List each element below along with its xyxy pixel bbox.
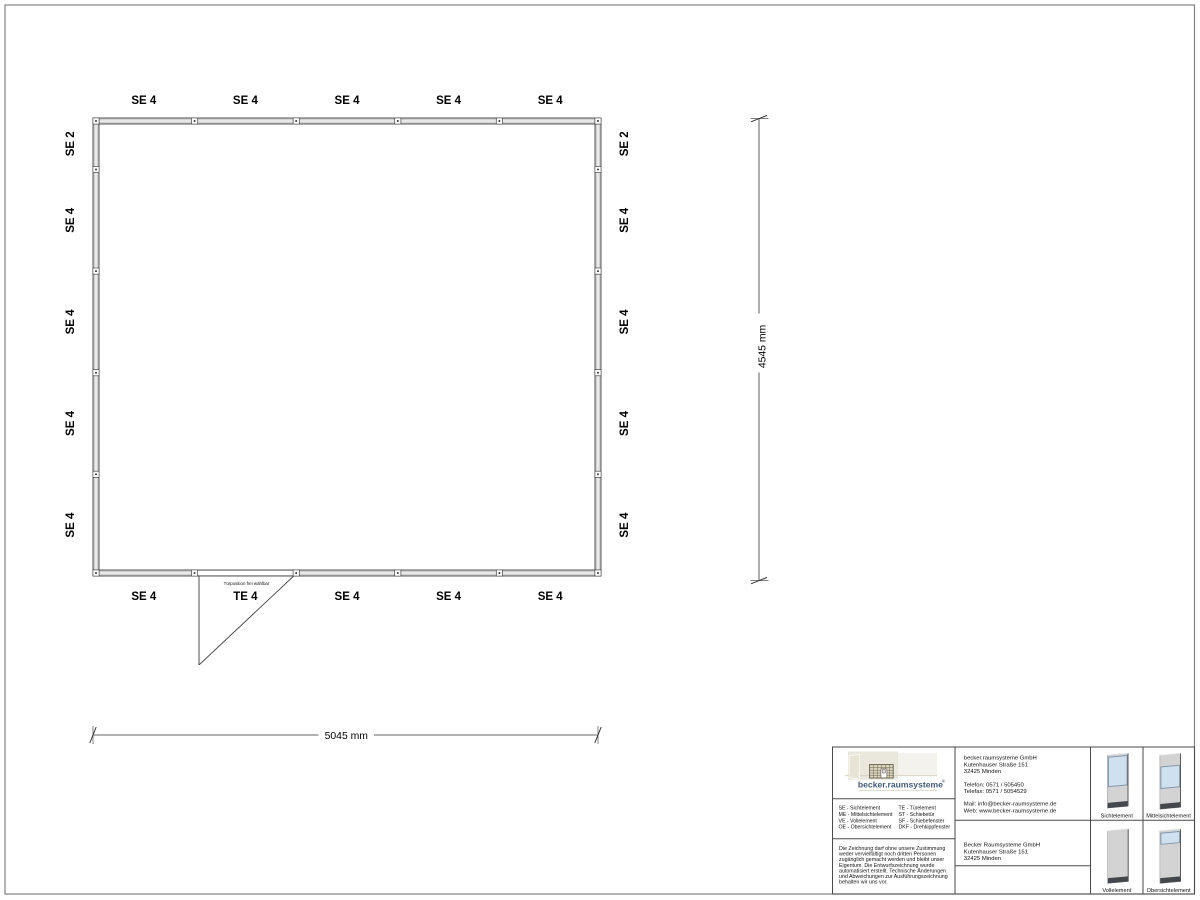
svg-text:ST - Schiebetür: ST - Schiebetür: [899, 812, 935, 818]
svg-text:SE 4: SE 4: [436, 591, 462, 603]
svg-text:SF - Schiebefenster: SF - Schiebefenster: [899, 818, 945, 824]
svg-text:SE - Sichtelement: SE - Sichtelement: [839, 805, 881, 811]
svg-text:Telefax: 0571 / 5054529: Telefax: 0571 / 5054529: [964, 789, 1027, 795]
svg-text:becker.raumsysteme GmbH: becker.raumsysteme GmbH: [964, 756, 1037, 762]
svg-text:Kutenhauser Straße 151: Kutenhauser Straße 151: [964, 762, 1028, 768]
svg-text:4545 mm: 4545 mm: [757, 325, 768, 368]
svg-text:Becker Raumsysteme GmbH: Becker Raumsysteme GmbH: [964, 843, 1040, 849]
svg-text:SE 2: SE 2: [65, 131, 77, 156]
svg-text:SE 4: SE 4: [65, 512, 77, 538]
svg-text:32425 Minden: 32425 Minden: [964, 769, 1001, 775]
svg-text:Türposition frei wählbar: Türposition frei wählbar: [224, 581, 270, 586]
svg-text:SE 4: SE 4: [65, 207, 77, 233]
svg-text:SE 4: SE 4: [538, 95, 564, 107]
svg-text:TE 4: TE 4: [233, 591, 258, 603]
svg-text:behalten wir uns vor.: behalten wir uns vor.: [839, 880, 888, 886]
svg-text:Telefon: 0571 / 505450: Telefon: 0571 / 505450: [964, 782, 1025, 788]
svg-text:SE 4: SE 4: [436, 95, 462, 107]
svg-text:ME - Mittelsichtelement: ME - Mittelsichtelement: [839, 812, 893, 818]
svg-text:SE 4: SE 4: [65, 309, 77, 335]
svg-text:5045 mm: 5045 mm: [325, 731, 368, 742]
svg-text:32425 Minden: 32425 Minden: [964, 856, 1001, 862]
svg-text:SE 4: SE 4: [619, 410, 631, 436]
svg-text:Vollelement: Vollelement: [1102, 888, 1131, 894]
svg-text:SE 4: SE 4: [538, 591, 564, 603]
svg-text:®: ®: [942, 778, 946, 784]
svg-text:TE - Türelement: TE - Türelement: [899, 805, 937, 811]
svg-text:Mittelsichtelement: Mittelsichtelement: [1146, 814, 1191, 820]
svg-text:Web: www.becker-raumsysteme.de: Web: www.becker-raumsysteme.de: [964, 808, 1057, 814]
svg-text:SE 4: SE 4: [619, 207, 631, 233]
svg-text:VE - Vollelement: VE - Vollelement: [839, 818, 878, 824]
svg-text:SE 4: SE 4: [619, 309, 631, 335]
svg-text:Obersichtelement: Obersichtelement: [1147, 888, 1191, 894]
svg-text:SE 2: SE 2: [619, 131, 631, 156]
svg-text:becker.raumsysteme: becker.raumsysteme: [858, 780, 943, 790]
svg-text:SE 4: SE 4: [335, 591, 361, 603]
svg-text:SE 4: SE 4: [131, 95, 157, 107]
svg-text:SE 4: SE 4: [131, 591, 157, 603]
svg-text:Mail: info@becker-raumsysteme.: Mail: info@becker-raumsysteme.de: [964, 802, 1057, 808]
svg-text:DKF - Drehkippfenster: DKF - Drehkippfenster: [899, 825, 951, 831]
svg-text:Sichtelement: Sichtelement: [1101, 814, 1134, 820]
svg-text:SE 4: SE 4: [233, 95, 259, 107]
svg-text:SE 4: SE 4: [335, 95, 361, 107]
svg-text:SE 4: SE 4: [65, 410, 77, 436]
svg-text:OE - Obersichtelement: OE - Obersichtelement: [839, 825, 892, 831]
svg-text:Kutenhauser Straße 151: Kutenhauser Straße 151: [964, 849, 1028, 855]
svg-text:SE 4: SE 4: [619, 512, 631, 538]
